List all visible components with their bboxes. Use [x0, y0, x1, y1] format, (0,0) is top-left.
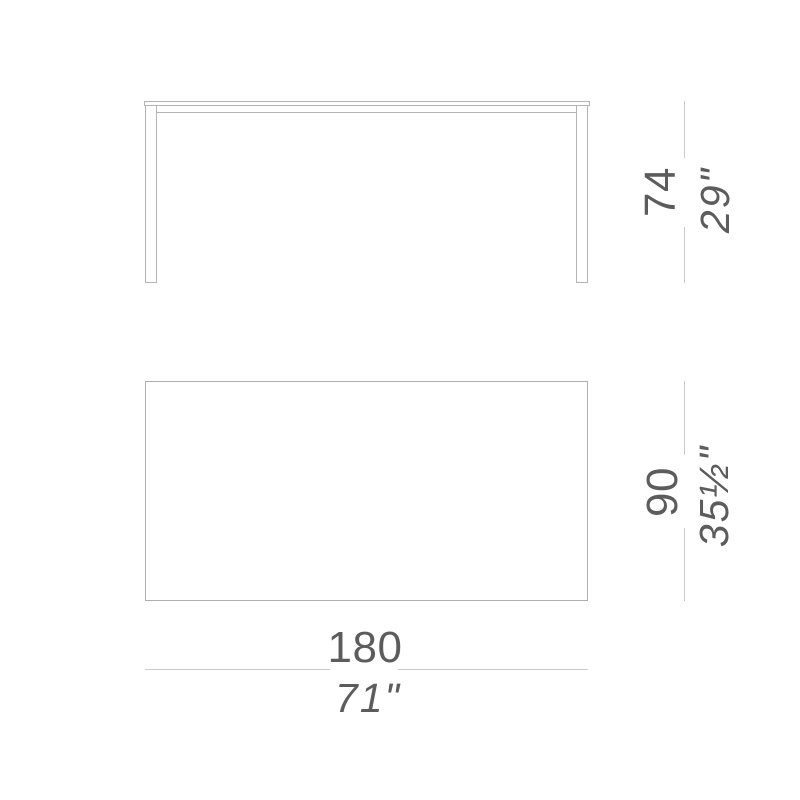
technical-drawing-canvas: 74 29" 90 35½" 180 71"	[0, 0, 800, 800]
length-metric-label: 180	[265, 624, 465, 672]
table-left-leg	[145, 105, 157, 283]
depth-metric-label: 90	[639, 392, 687, 592]
length-imperial-label: 71"	[268, 674, 468, 722]
tabletop-front-slab	[144, 101, 590, 106]
apron-line	[157, 112, 577, 113]
tabletop-plan-view	[145, 381, 588, 601]
depth-imperial-label: 35½"	[690, 396, 738, 596]
table-right-leg	[576, 105, 588, 283]
height-metric-label: 74	[637, 92, 685, 292]
height-imperial-label: 29"	[691, 100, 739, 300]
